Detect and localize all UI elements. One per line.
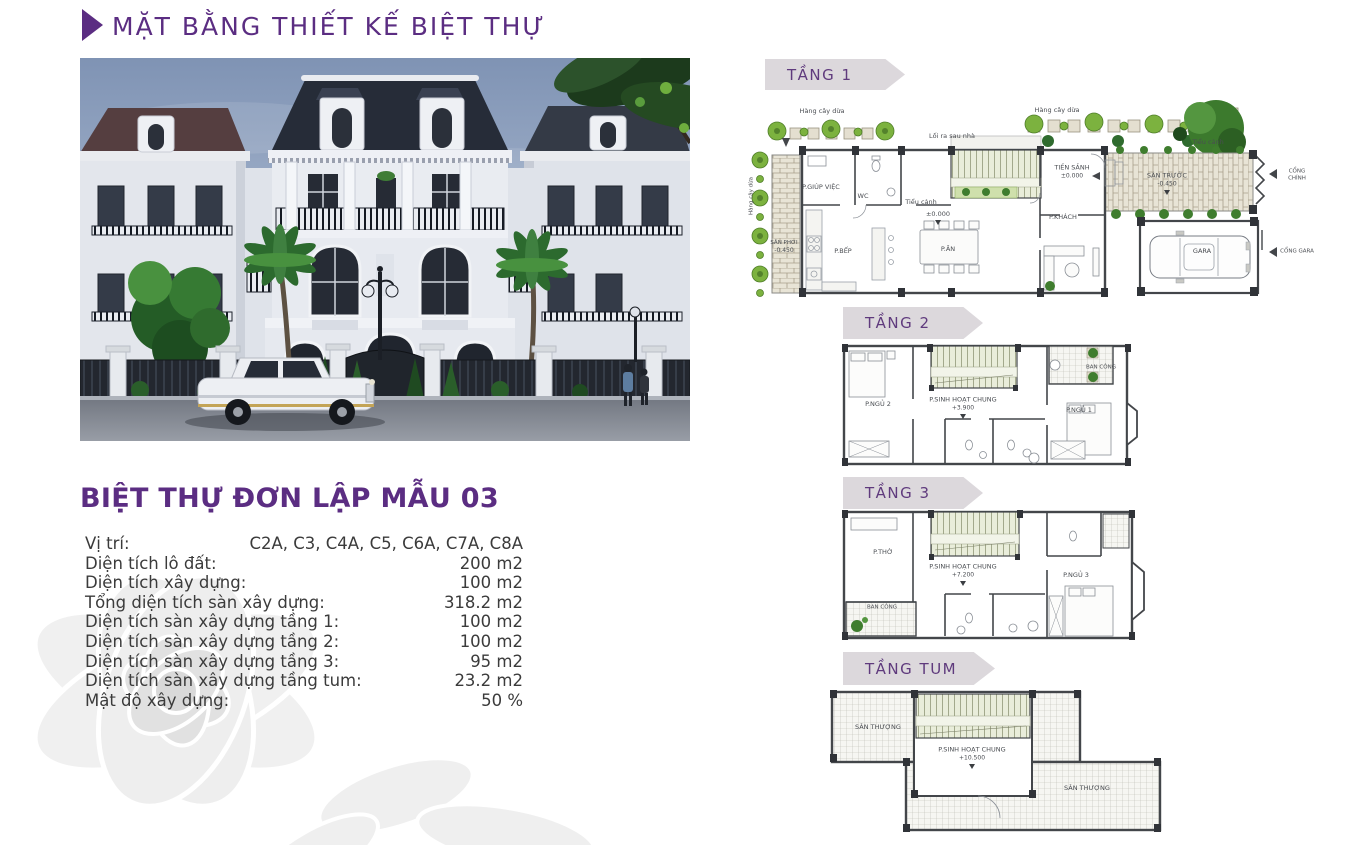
floor-banner-tang-3: TẦNG 3: [843, 477, 983, 509]
plan1-gates: [1256, 156, 1277, 257]
villa-name-heading: BIỆT THỰ ĐƠN LẬP MẪU 03: [80, 483, 540, 514]
spec-value: 318.2 m2: [444, 593, 523, 613]
tum-stairs: [916, 694, 1030, 738]
spec-value: 100 m2: [460, 632, 523, 652]
label-p-ngu-3: P.NGỦ 3: [1063, 572, 1089, 580]
label-san-phoi-level: -0.450: [770, 247, 797, 254]
plan1-garage: [1140, 221, 1258, 293]
spec-label: Diện tích xây dựng:: [85, 573, 246, 593]
label-p-tho: P.THỜ: [873, 549, 893, 557]
label-tien-sanh-text: TIỀN SẢNH: [1054, 165, 1089, 173]
label-f3-level: +7.200: [929, 571, 996, 578]
spec-row: Mật độ xây dựng:50 %: [85, 691, 523, 711]
label-tien-sanh: TIỀN SẢNH ±0.000: [1054, 165, 1089, 180]
spec-row: Diện tích lô đất:200 m2: [85, 554, 523, 574]
label-p-ngu-1: P.NGỦ 1: [1066, 407, 1092, 415]
level-marker-icon: [960, 414, 966, 419]
header-arrow-icon: [82, 9, 103, 41]
level-marker-icon: [1164, 190, 1170, 195]
level-marker-icon: [935, 220, 941, 225]
spec-label: Tổng diện tích sàn xây dựng:: [85, 593, 325, 613]
spec-row: Diện tích xây dựng:100 m2: [85, 573, 523, 593]
label-p-giup-viec: P.GIÚP VIỆC: [801, 184, 841, 192]
label-f2-ban-cong: BAN CÔNG: [1086, 365, 1116, 372]
spec-label: Diện tích sàn xây dựng tầng tum:: [85, 671, 362, 691]
villa-photo: [80, 58, 690, 441]
spec-value: 100 m2: [460, 573, 523, 593]
dormer-left: [316, 88, 364, 150]
label-san-truoc: SÂN TRƯỚC -0.450: [1147, 173, 1187, 188]
label-f2-level: +3.900: [929, 404, 996, 411]
header-bar: MẶT BẰNG THIẾT KẾ BIỆT THỰ: [0, 0, 760, 56]
spec-label: Vị trí:: [85, 534, 130, 554]
floor-plan-tang-tum: [828, 686, 1168, 838]
label-level-0: ±0.000: [926, 211, 950, 219]
label-tum-shc-text: P.SINH HOẠT CHUNG: [938, 747, 1005, 755]
spec-label: Diện tích sàn xây dựng tầng 1:: [85, 612, 339, 632]
spec-value: 23.2 m2: [454, 671, 523, 691]
level-marker-icon: [969, 764, 975, 769]
spec-label: Diện tích sàn xây dựng tầng 3:: [85, 652, 339, 672]
label-cong-gara: CỔNG GARA: [1280, 249, 1314, 256]
spec-label: Diện tích lô đất:: [85, 554, 217, 574]
dormer-right: [416, 88, 464, 150]
spec-list: Vị trí:C2A, C3, C4A, C5, C6A, C7A, C8A D…: [85, 534, 523, 710]
brochure-page: MẶT BẰNG THIẾT KẾ BIỆT THỰ: [0, 0, 1366, 845]
floor-plan-tang-1: [748, 98, 1310, 300]
spec-row: Diện tích sàn xây dựng tầng tum:23.2 m2: [85, 671, 523, 691]
label-gara: GARA: [1193, 248, 1211, 256]
page-title: MẶT BẰNG THIẾT KẾ BIỆT THỰ: [112, 12, 546, 41]
label-tien-sanh-level: ±0.000: [1054, 172, 1089, 179]
label-hang-cay-dua-right: Hàng cây dừa: [1035, 107, 1080, 115]
plan2-stairs: [931, 346, 1017, 388]
label-cong-chinh: CỔNG CHÍNH: [1280, 168, 1314, 181]
spec-value: 95 m2: [470, 652, 523, 672]
label-san-phoi: SÂN PHƠI -0.450: [770, 240, 797, 254]
label-f3-ban-cong: BAN CÔNG: [867, 605, 897, 612]
label-san-truoc-text: SÂN TRƯỚC: [1147, 173, 1187, 181]
spec-row: Vị trí:C2A, C3, C4A, C5, C6A, C7A, C8A: [85, 534, 523, 554]
level-marker-icon: [960, 581, 966, 586]
spec-value: 50 %: [481, 691, 523, 711]
spec-label: Mật độ xây dựng:: [85, 691, 229, 711]
label-san-phoi-text: SÂN PHƠI: [770, 240, 797, 247]
plan3-stairs: [931, 512, 1019, 556]
label-hang-cay-dua-left: Hàng cây dừa: [800, 108, 845, 116]
spec-value: C2A, C3, C4A, C5, C6A, C7A, C8A: [249, 534, 523, 554]
spec-row: Diện tích sàn xây dựng tầng 3:95 m2: [85, 652, 523, 672]
label-p-ngu-2: P.NGỦ 2: [865, 401, 891, 409]
label-wc: WC: [858, 193, 869, 201]
label-tieu-canh-stair: Tiểu cảnh: [905, 199, 937, 207]
spec-label: Diện tích sàn xây dựng tầng 2:: [85, 632, 339, 652]
label-tum-level: +10.500: [938, 754, 1005, 761]
label-p-bep: P.BẾP: [834, 248, 851, 256]
label-p-khach: P.KHÁCH: [1049, 214, 1077, 222]
spec-value: 200 m2: [460, 554, 523, 574]
label-hang-cay-dua-side: Hàng cây dừa: [749, 177, 756, 215]
label-san-truoc-level: -0.450: [1147, 180, 1187, 187]
spec-row: Diện tích sàn xây dựng tầng 1:100 m2: [85, 612, 523, 632]
spec-value: 100 m2: [460, 612, 523, 632]
label-p-an: P.ĂN: [941, 246, 955, 254]
floor-banner-tang-1: TẦNG 1: [765, 59, 905, 90]
label-tieu-canh-yard: Tiểu cảnh: [1192, 139, 1224, 147]
label-tum-sinh-hoat-chung: P.SINH HOẠT CHUNG +10.500: [938, 747, 1005, 762]
label-f2-shc-text: P.SINH HOẠT CHUNG: [929, 397, 996, 405]
label-f3-sinh-hoat-chung: P.SINH HOẠT CHUNG +7.200: [929, 564, 996, 579]
road: [80, 396, 690, 441]
label-san-thuong-1: SÂN THƯỢNG: [855, 724, 901, 732]
label-san-thuong-2: SÂN THƯỢNG: [1064, 785, 1110, 793]
spec-row: Diện tích sàn xây dựng tầng 2:100 m2: [85, 632, 523, 652]
floor-banner-tang-2: TẦNG 2: [843, 307, 983, 339]
spec-row: Tổng diện tích sàn xây dựng:318.2 m2: [85, 593, 523, 613]
label-f3-shc-text: P.SINH HOẠT CHUNG: [929, 564, 996, 572]
floor-banner-tang-tum: TẦNG TUM: [843, 652, 995, 685]
villa-info-section: BIỆT THỰ ĐƠN LẬP MẪU 03 Vị trí:C2A, C3, …: [80, 483, 540, 710]
label-f2-sinh-hoat-chung: P.SINH HOẠT CHUNG +3.900: [929, 397, 996, 412]
label-loi-ra-sau-nha: Lối ra sau nhà: [929, 133, 975, 141]
